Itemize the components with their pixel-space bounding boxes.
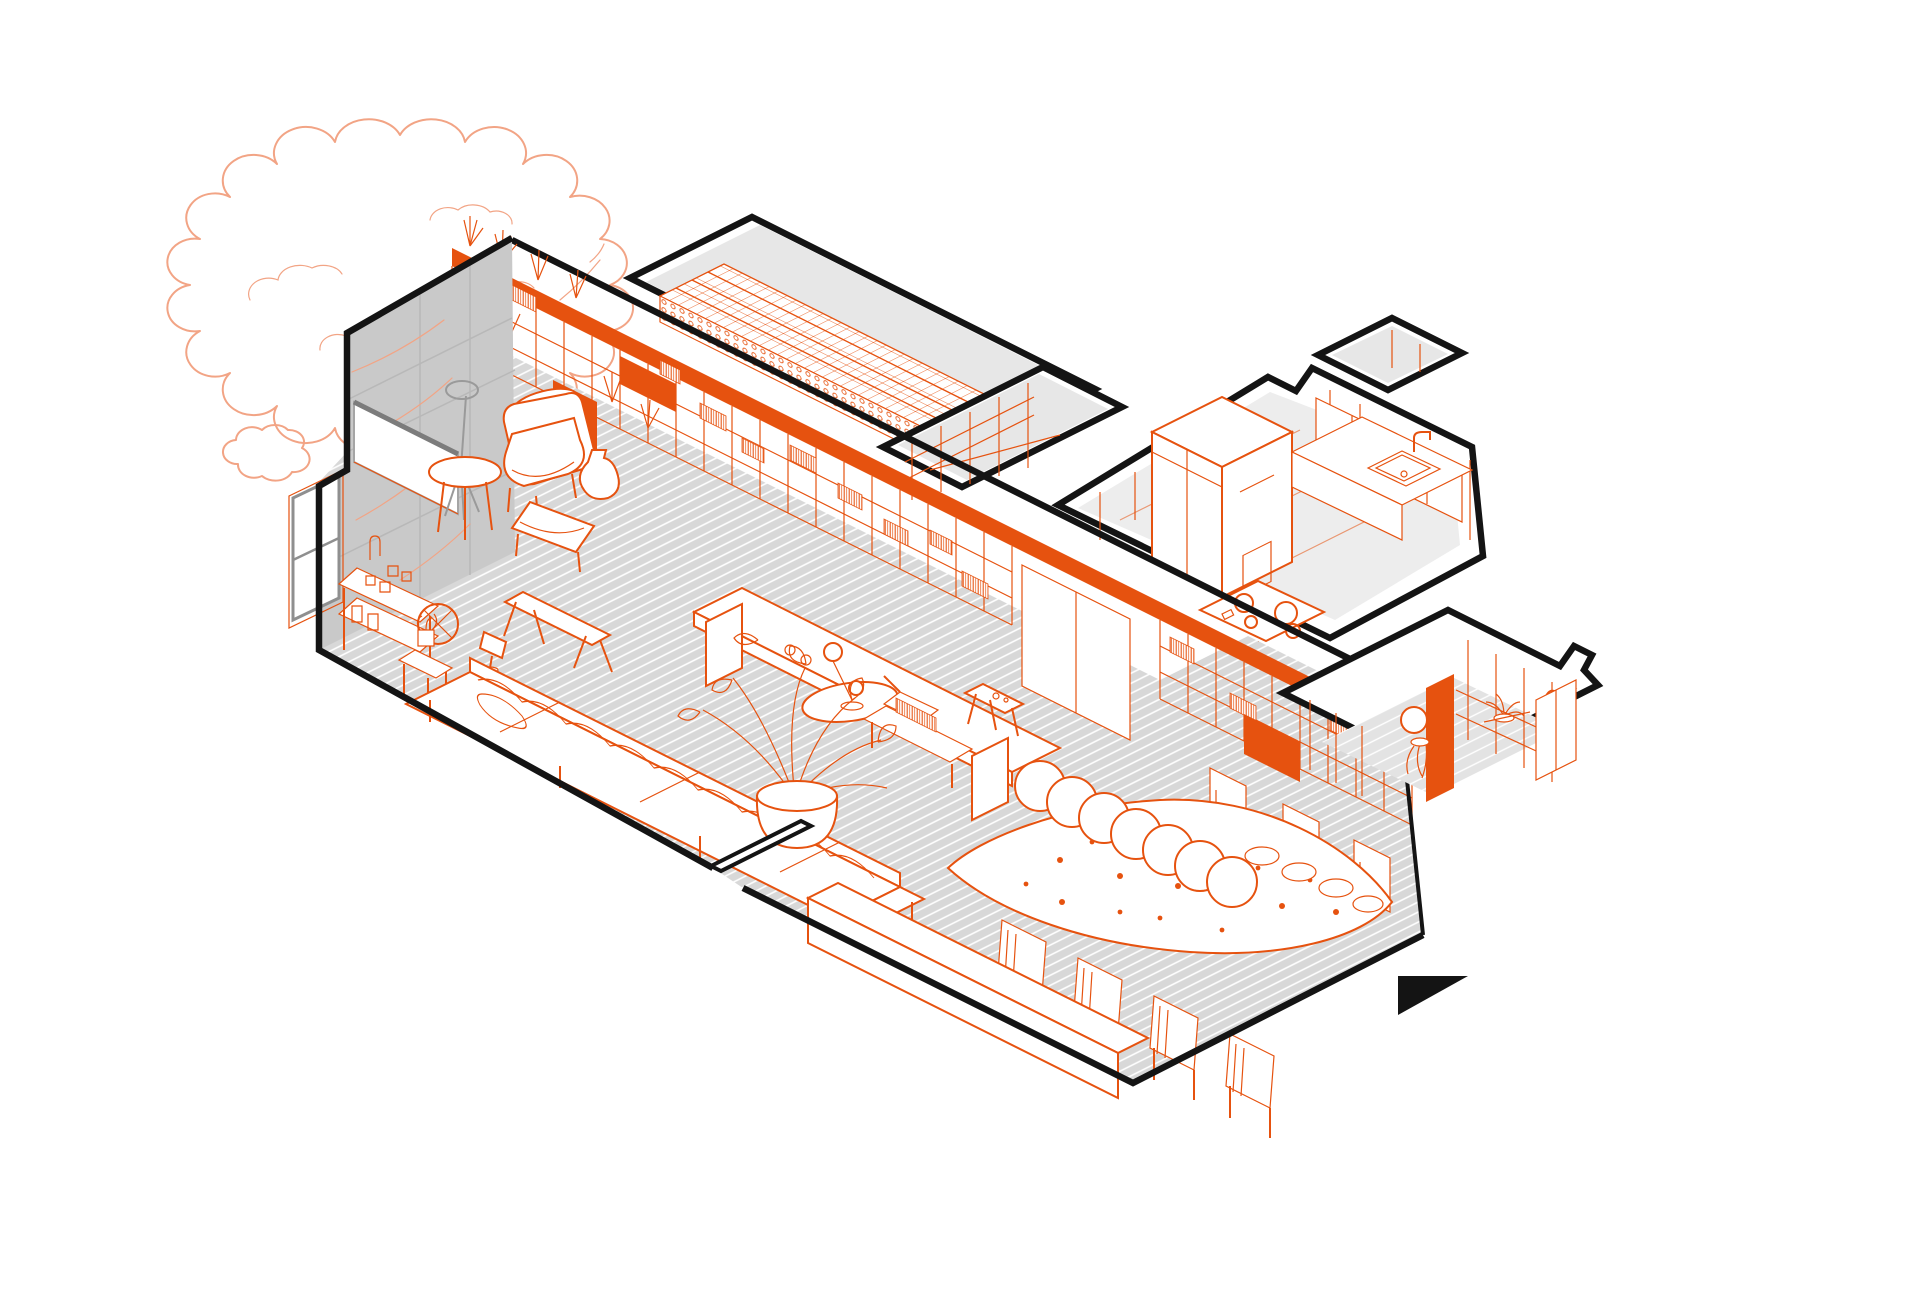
- axonometric-drawing: [0, 0, 1920, 1302]
- orange-door-panel: [1426, 674, 1454, 802]
- wall-mirror: [1401, 707, 1427, 733]
- apartment-cutaway-svg: [0, 0, 1920, 1302]
- view-direction-triangle: [1398, 976, 1468, 1015]
